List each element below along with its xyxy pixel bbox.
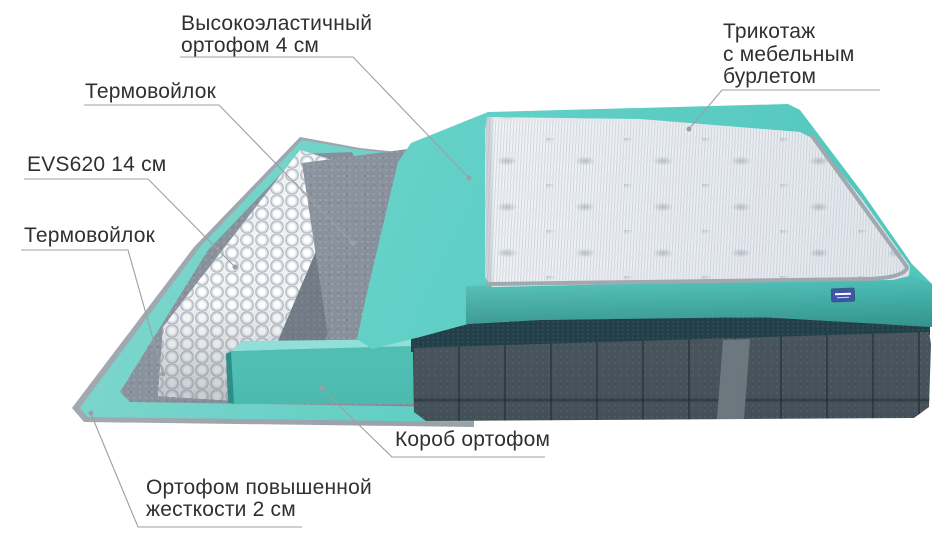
label-elastic-foam: Высокоэластичный ортофом 4 см [181, 13, 372, 57]
label-line: жесткости 2 см [146, 499, 372, 521]
label-line: с мебельным [723, 44, 855, 67]
label-spring-unit: EVS620 14 см [27, 154, 166, 176]
cover-piping [487, 136, 907, 284]
leader-elastic-foam [180, 57, 469, 178]
label-line: EVS620 14 см [27, 154, 166, 176]
label-thermo-felt-lower: Термовойлок [24, 225, 155, 247]
leader-dot-hard-foam-base [89, 411, 94, 416]
label-foam-box: Короб ортофом [395, 429, 550, 451]
leader-dot-elastic-foam [467, 176, 472, 181]
label-knit-cover: Трикотаж с мебельным бурлетом [723, 21, 855, 89]
leader-dot-knit-cover [687, 127, 692, 132]
label-line: ортофом 4 см [181, 35, 372, 57]
mattress-layers-diagram: Высокоэластичный ортофом 4 см Трикотаж с… [0, 0, 932, 541]
label-line: Трикотаж [723, 21, 855, 44]
leader-dot-thermo-felt-upper [351, 241, 356, 246]
label-line: бурлетом [723, 66, 855, 89]
label-line: Короб ортофом [395, 429, 550, 451]
label-hard-foam-base: Ортофом повышенной жесткости 2 см [146, 477, 372, 521]
leader-dot-thermo-felt-lower [161, 372, 166, 377]
leader-dot-spring-unit [233, 265, 238, 270]
label-line: Высокоэластичный [181, 13, 372, 35]
leader-knit-cover [689, 90, 880, 129]
label-line: Ортофом повышенной [146, 477, 372, 499]
label-line: Термовойлок [24, 225, 155, 247]
leader-dot-foam-box [320, 386, 325, 391]
leader-thermo-felt-lower [21, 250, 163, 374]
label-line: Термовойлок [85, 81, 216, 103]
label-thermo-felt-upper: Термовойлок [85, 81, 216, 103]
